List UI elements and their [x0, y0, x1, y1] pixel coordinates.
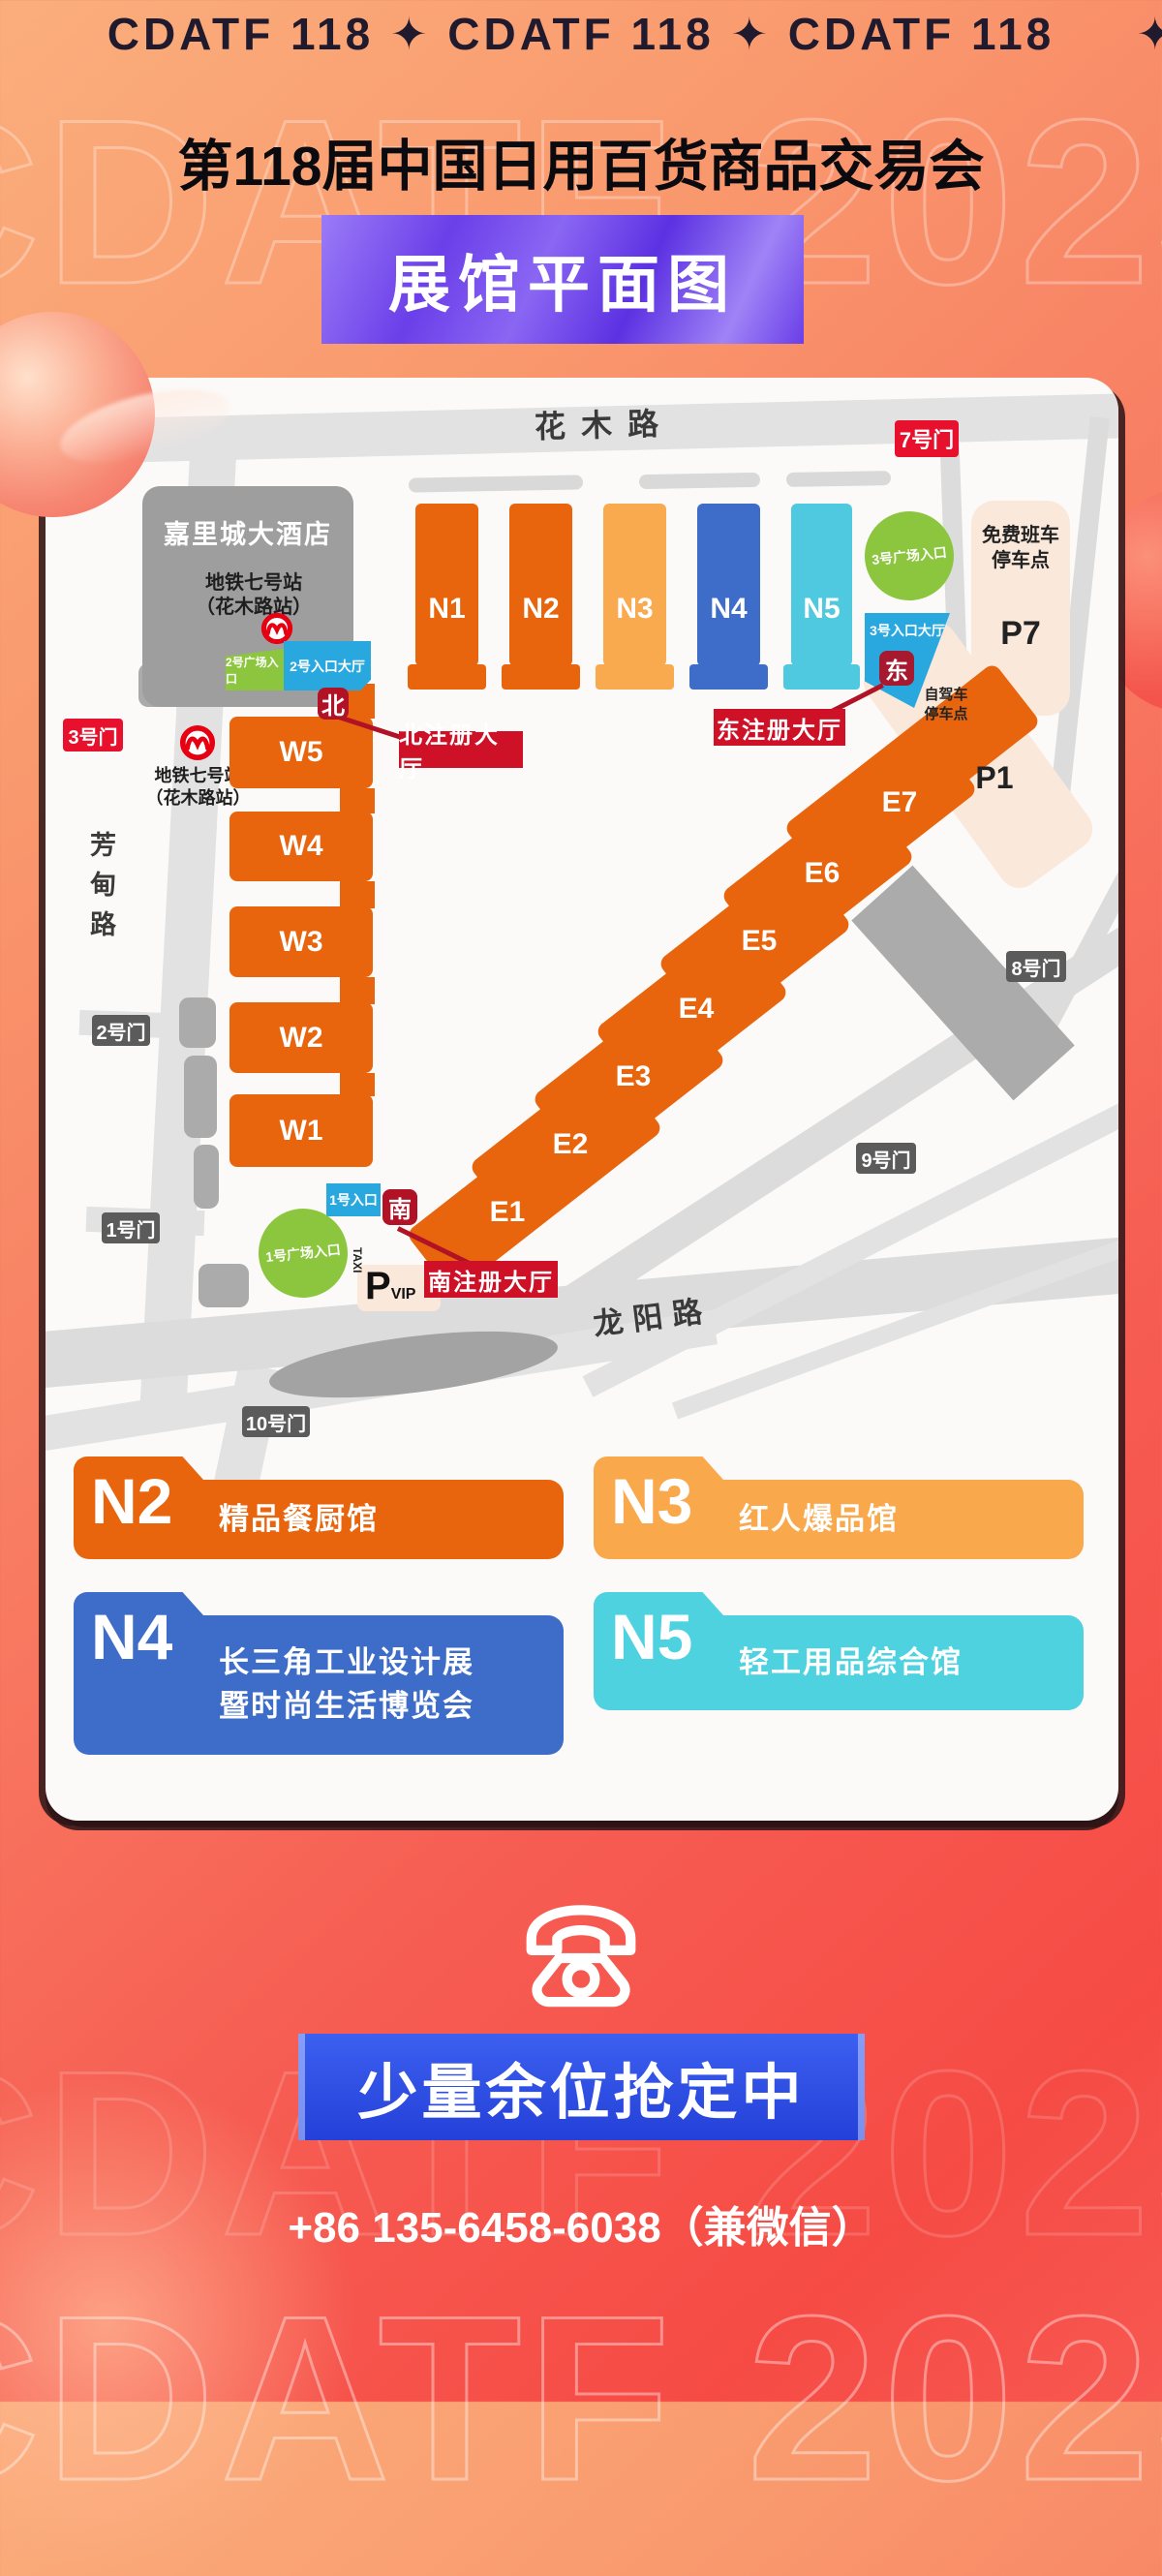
hall-w-connector: [340, 1073, 375, 1096]
gate-7: 7号门: [895, 420, 959, 457]
hall-w4: W4: [229, 812, 373, 881]
hall-n3-label: N3: [603, 593, 666, 626]
legend-n5-label: 轻工用品综合馆: [739, 1615, 963, 1710]
hall-e5-label: E5: [728, 925, 790, 958]
hall-n1-label: N1: [415, 593, 478, 626]
phone-icon: [502, 1885, 660, 2028]
building-blob: [179, 997, 216, 1048]
hall-n2-label: N2: [509, 593, 572, 626]
parking-p7-code: P7: [973, 615, 1068, 653]
hall-w2: W2: [229, 1002, 373, 1073]
road-label-fangdian: 芳甸路: [82, 831, 120, 950]
header-ticker: CDATF 118 ✦ CDATF 118 ✦ CDATF 118 ✦: [0, 8, 1162, 60]
gate-1: 1号门: [102, 1212, 160, 1243]
star-icon: ✦: [1136, 8, 1162, 60]
legend-n3-label: 红人爆品馆: [739, 1480, 899, 1559]
gate-3: 3号门: [63, 719, 123, 751]
entrance-plaza1: 1号广场入口: [254, 1204, 352, 1302]
entrance-hall2: 2号入口大厅: [284, 641, 371, 690]
east-registration: 东注册大厅: [714, 709, 845, 746]
hall-e3-label: E3: [602, 1060, 664, 1093]
building-blob: [194, 1145, 219, 1209]
cta-banner: 少量余位抢定中: [298, 2034, 865, 2140]
gate-9: 9号门: [856, 1143, 916, 1174]
gate-10: 10号门: [242, 1406, 310, 1437]
north-registration: 北注册大厅: [399, 731, 523, 768]
hall-n4-label: N4: [697, 593, 760, 626]
entrance-1: 1号入口: [326, 1183, 381, 1216]
annex-bar: [409, 475, 583, 492]
hall-e6-label: E6: [791, 857, 853, 890]
metro-icon: [260, 612, 293, 645]
east-badge: 东: [879, 651, 914, 686]
south-registration: 南注册大厅: [424, 1261, 558, 1298]
hall-w5: W5: [229, 717, 373, 788]
hall-w-connector: [340, 977, 375, 1004]
hall-w-connector: [340, 788, 375, 813]
south-badge: 南: [382, 1189, 417, 1225]
page-title: 第118届中国日用百货商品交易会: [0, 122, 1162, 201]
ticker-text: CDATF 118 ✦ CDATF 118 ✦ CDATF 118: [107, 9, 1055, 59]
hotel-metro-label: 地铁七号站 （花木路站）: [171, 571, 336, 620]
poster-page: { "watermark": "CDATF 2025", "header": {…: [0, 0, 1162, 2402]
hall-w3: W3: [229, 906, 373, 977]
gate-8: 8号门: [1006, 951, 1066, 982]
annex-bar: [639, 473, 760, 489]
phone-number: +86 135-6458-6038（兼微信）: [0, 2193, 1162, 2254]
hall-w-connector: [340, 881, 375, 908]
hall-e4-label: E4: [665, 993, 727, 1026]
legend-n5-code: N5: [611, 1592, 692, 1681]
legend-n4: N4 长三角工业设计展 暨时尚生活博览会: [74, 1592, 564, 1755]
north-badge: 北: [318, 688, 349, 720]
building-blob: [199, 1264, 249, 1307]
hall-e7-label: E7: [869, 786, 931, 819]
legend-n2-code: N2: [91, 1457, 172, 1546]
floorplan-banner: 展馆平面图: [321, 215, 804, 344]
parking-p1-code: P1: [961, 760, 1028, 796]
legend-n2-label: 精品餐厨馆: [219, 1480, 379, 1559]
legend-n3-code: N3: [611, 1457, 692, 1546]
vip-parking-p: PVIP: [365, 1265, 415, 1308]
hall-e1-label: E1: [476, 1196, 538, 1229]
legend-n2: N2 精品餐厨馆: [74, 1457, 564, 1559]
parking-p7-label: 免费班车 停车点: [973, 523, 1068, 573]
hall-e2-label: E2: [539, 1128, 601, 1161]
gate-2: 2号门: [92, 1015, 150, 1046]
taxi-label: TAXI: [351, 1247, 364, 1273]
legend-n3: N3 红人爆品馆: [594, 1457, 1084, 1559]
annex-bar: [786, 471, 891, 487]
hotel-name: 嘉里城大酒店: [142, 513, 353, 551]
road-label-huamu: 花木路: [534, 399, 674, 447]
building-blob: [184, 1056, 217, 1138]
legend-n5: N5 轻工用品综合馆: [594, 1592, 1084, 1710]
watermark-bottom: CDATF 2025: [0, 2264, 1162, 2533]
legend-n4-code: N4: [91, 1592, 172, 1681]
hall-w1: W1: [229, 1094, 373, 1167]
metro-icon: [179, 724, 216, 761]
legend-n4-label: 长三角工业设计展 暨时尚生活博览会: [219, 1615, 474, 1755]
hall-n5-label: N5: [791, 593, 852, 626]
